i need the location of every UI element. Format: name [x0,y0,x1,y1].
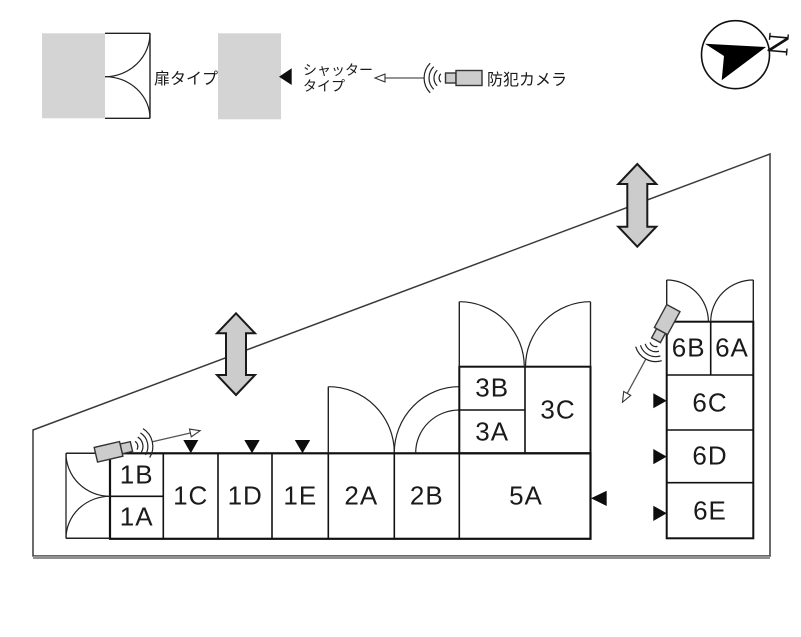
legend-shutter-type-label-line1: シャッター [303,62,373,78]
unit-label-3a: 3A [475,416,509,447]
unit-label-1c: 1C [173,480,208,511]
unit-label-5a: 5A [509,480,543,511]
legend-door-box [42,33,105,118]
door-swing-icon [105,33,150,118]
unit-label-1e: 1E [283,480,317,511]
unit-label-1d: 1D [228,480,263,511]
site-plan-drawing [0,0,801,637]
unit-label-1a: 1A [120,502,154,533]
door-3bc [459,302,590,367]
legend-shutter-box [218,33,281,119]
shutter-marker-1e [295,440,310,453]
unit-label-6b: 6B [672,333,706,364]
legend-camera-label: 防犯カメラ [487,66,567,90]
unit-label-6c: 6C [692,387,727,418]
shutter-marker-6c [653,393,666,408]
shutter-marker-6d [653,449,666,464]
unit-label-6e: 6E [693,495,727,526]
compass-north-label: N [761,31,794,57]
door-6ab [667,280,754,322]
door-1ab [66,453,110,538]
unit-label-3b: 3B [475,373,509,404]
unit-label-2b: 2B [410,480,444,511]
double-arrow-right [618,164,656,247]
unit-label-3c: 3C [540,395,575,426]
legend-shutter-type-label-line2: タイプ [303,78,345,94]
site-plan-page: 扉タイプ シャッター タイプ 防犯カメラ N 1B 1A 1C 1D 1E 2A… [0,0,801,637]
legend-door-type-label: 扉タイプ [154,65,218,89]
compass [702,21,770,89]
shutter-marker-1d [244,440,259,453]
shutter-marker-5a [591,491,607,506]
security-camera-icon [375,63,482,93]
unit-label-1b: 1B [120,459,154,490]
legend [42,33,482,119]
door-2a-2b-3a [328,387,459,454]
double-arrow-left [217,313,255,395]
unit-label-6a: 6A [715,333,749,364]
shutter-marker-1c [183,440,198,453]
unit-label-2a: 2A [344,480,378,511]
shutter-marker-6e [653,506,666,521]
unit-label-6d: 6D [692,441,727,472]
